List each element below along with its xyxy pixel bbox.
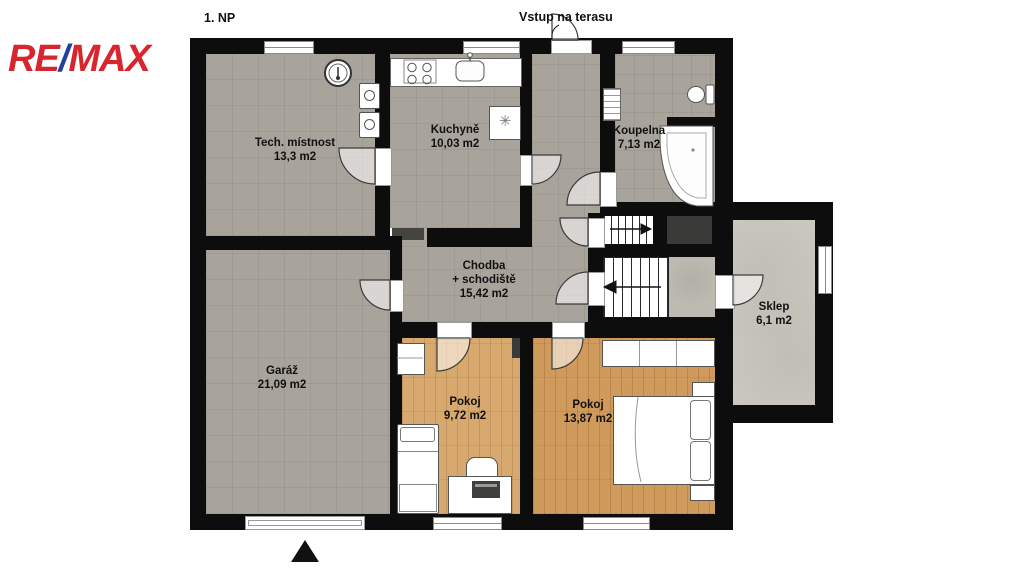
entrance-arrow-icon	[291, 540, 319, 562]
wardrobe-large-room	[602, 340, 715, 367]
room-label-bathroom: Koupelna 7,13 m2	[564, 124, 714, 152]
room-name-line2: + schodiště	[409, 273, 559, 287]
pillow	[690, 441, 711, 481]
wall-stair-sliver-right	[712, 213, 717, 244]
dryer-door-icon	[364, 119, 375, 130]
room-area: 13,3 m2	[220, 150, 370, 164]
room-name: Koupelna	[564, 124, 714, 138]
desk	[448, 476, 512, 514]
logo-re: RE	[8, 38, 59, 80]
wall-stair-sliver	[653, 213, 667, 244]
wall-hall-rooms-c	[583, 322, 717, 338]
pillow	[690, 400, 711, 440]
wall-room-divider	[520, 338, 533, 514]
terrace-label-leader-line	[552, 25, 559, 39]
wall-cellar-bottom	[715, 405, 833, 423]
blanket-edge	[398, 451, 438, 452]
window-bathroom	[622, 41, 675, 54]
floor-level-label: 1. NP	[204, 11, 235, 25]
room-label-kitchen: Kuchyně 10,03 m2	[380, 123, 530, 151]
garage-door-panel	[248, 520, 362, 526]
washing-machine-icon	[359, 83, 380, 109]
wardrobe-small-room	[397, 343, 425, 375]
remax-logo: RE/MAX	[8, 38, 150, 81]
room-area: 21,09 m2	[207, 378, 357, 392]
floor-plan-canvas: RE/MAX 1. NP Vstup na terasu	[0, 0, 1024, 576]
door-jamb-stairs-lower	[588, 272, 605, 306]
room-label-hallway: Chodba + schodiště 15,42 m2	[409, 259, 559, 301]
room-name: Sklep	[699, 300, 849, 314]
wall-stair-mid	[603, 244, 717, 257]
nightstand-top	[692, 382, 715, 397]
room-area: 7,13 m2	[564, 138, 714, 152]
door-jamb-room-small	[437, 322, 472, 340]
wall-outer-left	[190, 38, 206, 530]
computer-screen-line	[475, 484, 497, 487]
door-jamb-room-large	[552, 322, 585, 340]
wall-tech-garage	[190, 236, 402, 250]
wall-garage-hall-upper	[390, 236, 402, 280]
window-cellar	[818, 246, 832, 294]
door-jamb-bathroom	[600, 172, 617, 207]
room-label-tech: Tech. místnost 13,3 m2	[220, 136, 370, 164]
wall-kitchen-bottom	[427, 228, 532, 247]
room-name: Chodba	[409, 259, 559, 273]
computer-icon	[472, 481, 500, 498]
nightstand-bottom	[690, 485, 715, 501]
single-bed	[397, 424, 439, 514]
door-jamb-kitchen	[520, 155, 534, 186]
wall-hall-rooms-a	[402, 322, 437, 338]
window-tech	[264, 41, 314, 54]
window-room-large	[583, 517, 650, 530]
window-kitchen	[463, 41, 520, 54]
door-jamb-tech	[375, 148, 392, 186]
washer-door-icon	[364, 90, 375, 101]
room-area: 6,1 m2	[699, 314, 849, 328]
wall-stair-left-b	[588, 246, 603, 272]
kitchen-counter	[390, 58, 522, 87]
room-name: Kuchyně	[380, 123, 530, 137]
room-area: 13,87 m2	[513, 412, 663, 426]
dryer-icon	[359, 112, 380, 138]
stair-void	[667, 213, 712, 244]
logo-max: MAX	[68, 38, 149, 80]
logo-slash: /	[59, 38, 69, 80]
room-area: 15,42 m2	[409, 287, 559, 301]
room-area: 10,03 m2	[380, 137, 530, 151]
room-name: Pokoj	[513, 398, 663, 412]
room-name: Tech. místnost	[220, 136, 370, 150]
wall-hall-rooms-b	[470, 322, 552, 338]
room-label-room-large: Pokoj 13,87 m2	[513, 398, 663, 426]
stair-flight-lower	[603, 257, 669, 319]
wardrobe-divider	[639, 341, 640, 366]
room-name: Garáž	[207, 364, 357, 378]
wardrobe-divider	[676, 341, 677, 366]
wall-kitchen-corridor-lower	[520, 184, 532, 228]
terrace-door-opening	[551, 40, 592, 54]
pillow	[400, 427, 435, 442]
wall-tech-kitchen-lower	[375, 184, 390, 236]
radiator-icon	[603, 88, 621, 121]
room-label-cellar: Sklep 6,1 m2	[699, 300, 849, 328]
stair-flight-upper	[603, 213, 655, 246]
window-room-small	[433, 517, 502, 530]
room-label-garage: Garáž 21,09 m2	[207, 364, 357, 392]
door-jamb-garage	[390, 280, 404, 312]
terrace-entry-label: Vstup na terasu	[519, 10, 613, 24]
bed-foot-chest	[399, 484, 437, 512]
garage-door-opening	[245, 516, 365, 530]
door-jamb-stairs-upper	[588, 218, 605, 248]
